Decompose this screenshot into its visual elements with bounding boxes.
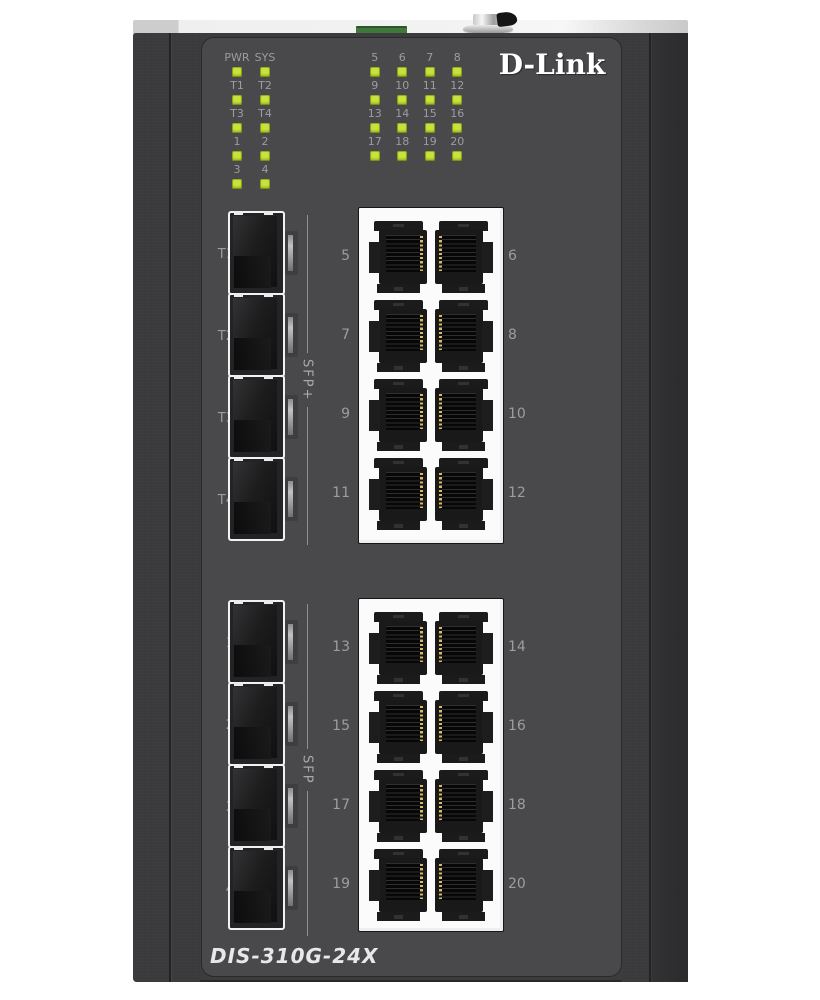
led-label: 7	[426, 50, 433, 66]
cage-tab	[264, 764, 273, 768]
rj45-row	[359, 221, 503, 293]
led-label: 18	[395, 134, 409, 150]
dlink-logo: D-Link	[472, 48, 632, 81]
led-label: 15	[423, 106, 437, 122]
led-label: 10	[395, 78, 409, 94]
sfp-group-divider-lower: SFP	[300, 604, 314, 936]
status-led	[452, 123, 462, 133]
status-led	[452, 151, 462, 161]
rail-shadow	[652, 33, 688, 982]
sfp-shade	[234, 502, 271, 534]
rj45-port	[367, 770, 429, 842]
status-led	[452, 95, 462, 105]
cage-tab	[264, 600, 273, 604]
rj45-block-upper	[358, 207, 504, 544]
port-number: 20	[508, 875, 544, 893]
rj45-row	[359, 612, 503, 684]
led-label: 14	[395, 106, 409, 122]
led-label: PWR	[224, 50, 249, 66]
sfp-cage	[228, 600, 285, 684]
sfp-shade	[234, 727, 271, 759]
rj45-port	[433, 221, 495, 293]
status-led	[232, 95, 242, 105]
rj45-port	[433, 458, 495, 530]
led-label: T3	[230, 106, 244, 122]
led-group-right: 5 6 7 8 9 10 11 12 13	[361, 50, 471, 162]
rj45-port	[433, 379, 495, 451]
sfp-shade	[234, 891, 271, 923]
led-label: 12	[450, 78, 464, 94]
screw-lug	[496, 11, 518, 27]
led-label: T1	[230, 78, 244, 94]
port-number: 16	[508, 717, 544, 735]
status-led	[232, 123, 242, 133]
status-led	[260, 123, 270, 133]
rj45-port	[367, 379, 429, 451]
rj45-port	[367, 300, 429, 372]
led-label: 4	[262, 162, 269, 178]
model-name: DIS-310G-24X	[210, 944, 378, 968]
rj45-port	[367, 612, 429, 684]
status-led	[370, 95, 380, 105]
mounting-rail-right	[621, 33, 688, 982]
rj45-row	[359, 770, 503, 842]
cage-tab	[234, 682, 243, 686]
sfp-cage	[228, 846, 285, 930]
led-label: 16	[450, 106, 464, 122]
led-label: T2	[258, 78, 272, 94]
front-panel: D-Link PWR SYS T1 T2 T3 T4 1 2	[201, 37, 622, 977]
sfp-cage	[228, 764, 285, 848]
cage-tab	[264, 457, 273, 461]
status-led	[425, 123, 435, 133]
rj45-row	[359, 300, 503, 372]
sfp-latch	[285, 395, 298, 439]
port-number: 7	[318, 326, 350, 344]
status-led	[370, 151, 380, 161]
cage-tab	[234, 293, 243, 297]
port-number: 9	[318, 405, 350, 423]
rj45-block-lower	[358, 598, 504, 932]
sfp-latch	[285, 477, 298, 521]
status-led	[397, 95, 407, 105]
port-number: 11	[318, 484, 350, 502]
rail-groove	[649, 33, 651, 982]
sfp-cage-stack-lower	[228, 602, 285, 930]
status-led	[260, 179, 270, 189]
port-number: 10	[508, 405, 544, 423]
sfp-latch	[285, 784, 298, 828]
sfp-group-divider-upper: SFP+	[300, 215, 314, 545]
port-number: 5	[318, 247, 350, 265]
grounding-screw	[463, 13, 519, 35]
led-label: 13	[368, 106, 382, 122]
sfp-cage	[228, 293, 285, 377]
sfp-latch	[285, 866, 298, 910]
led-label: 8	[454, 50, 461, 66]
cage-tab	[234, 457, 243, 461]
port-number: 19	[318, 875, 350, 893]
cage-tab	[264, 375, 273, 379]
rj45-row	[359, 379, 503, 451]
status-led	[232, 179, 242, 189]
mounting-rail-left	[133, 33, 200, 982]
status-led	[260, 67, 270, 77]
rj45-port	[367, 691, 429, 763]
rj45-port	[433, 770, 495, 842]
led-label: 17	[368, 134, 382, 150]
rj45-row	[359, 458, 503, 530]
sfp-cage	[228, 682, 285, 766]
rj45-port	[367, 221, 429, 293]
cage-tab	[264, 846, 273, 850]
port-number: 6	[508, 247, 544, 265]
sfp-latch	[285, 231, 298, 275]
rj45-port	[433, 691, 495, 763]
port-number: 8	[508, 326, 544, 344]
led-label: 6	[399, 50, 406, 66]
status-led	[260, 151, 270, 161]
cage-tab	[234, 375, 243, 379]
led-label: 3	[234, 162, 241, 178]
cage-tab	[264, 293, 273, 297]
rj45-port	[433, 300, 495, 372]
port-number: 13	[318, 638, 350, 656]
led-label: 5	[371, 50, 378, 66]
status-led	[370, 67, 380, 77]
sfp-latch	[285, 702, 298, 746]
port-number: 18	[508, 796, 544, 814]
sfp-cage-stack-upper	[228, 213, 285, 541]
status-led	[452, 67, 462, 77]
status-led	[425, 95, 435, 105]
sfp-cage	[228, 211, 285, 295]
cage-tab	[234, 764, 243, 768]
cage-tab	[264, 682, 273, 686]
sfp-latch	[285, 313, 298, 357]
port-number: 17	[318, 796, 350, 814]
rj45-row	[359, 849, 503, 921]
sfp-latch	[285, 620, 298, 664]
led-label: 20	[450, 134, 464, 150]
sfp-cage	[228, 457, 285, 541]
led-label: 19	[423, 134, 437, 150]
sfp-shade	[234, 645, 271, 677]
rail-groove-highlight	[171, 33, 172, 982]
switch-device: D-Link PWR SYS T1 T2 T3 T4 1 2	[133, 20, 688, 982]
status-led	[425, 67, 435, 77]
led-label: 9	[371, 78, 378, 94]
sfp-shade	[234, 420, 271, 452]
sfp-shade	[234, 809, 271, 841]
rj45-port	[433, 849, 495, 921]
sfp-group-label: SFP	[300, 749, 315, 791]
status-led	[397, 67, 407, 77]
rj45-port	[433, 612, 495, 684]
status-led	[397, 123, 407, 133]
product-photo-switch: D-Link PWR SYS T1 T2 T3 T4 1 2	[0, 0, 820, 1000]
status-led	[370, 123, 380, 133]
port-number: 12	[508, 484, 544, 502]
sfp-shade	[234, 338, 271, 370]
led-label: SYS	[255, 50, 276, 66]
led-group-left: PWR SYS T1 T2 T3 T4 1 2 3	[223, 50, 279, 190]
cage-tab	[234, 211, 243, 215]
rj45-row	[359, 691, 503, 763]
status-led	[260, 95, 270, 105]
status-led	[232, 67, 242, 77]
chassis-top-edge	[133, 20, 688, 34]
cage-tab	[264, 211, 273, 215]
status-led	[425, 151, 435, 161]
divider-line	[307, 407, 308, 545]
led-label: T4	[258, 106, 272, 122]
divider-line	[307, 791, 308, 936]
led-label: 1	[234, 134, 241, 150]
port-number: 15	[318, 717, 350, 735]
port-number: 14	[508, 638, 544, 656]
status-led	[397, 151, 407, 161]
sfp-group-label: SFP+	[300, 353, 315, 407]
divider-line	[307, 215, 308, 353]
status-led	[232, 151, 242, 161]
cage-tab	[234, 846, 243, 850]
rj45-port	[367, 458, 429, 530]
divider-line	[307, 604, 308, 749]
chassis-body: D-Link PWR SYS T1 T2 T3 T4 1 2	[133, 33, 688, 982]
led-label: 2	[262, 134, 269, 150]
rj45-port	[367, 849, 429, 921]
sfp-cage	[228, 375, 285, 459]
sfp-shade	[234, 256, 271, 288]
led-label: 11	[423, 78, 437, 94]
cage-tab	[234, 600, 243, 604]
